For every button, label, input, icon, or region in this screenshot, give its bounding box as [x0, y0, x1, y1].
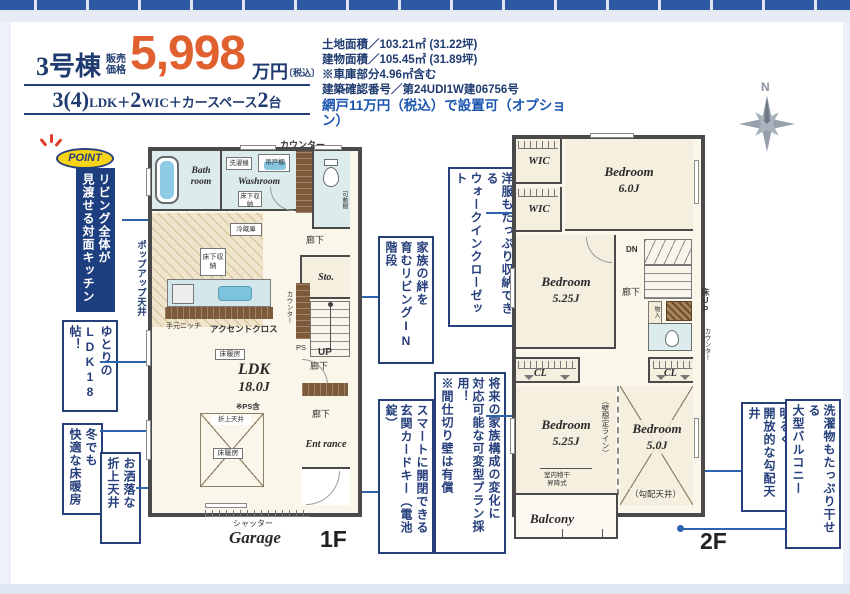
- stairs-up-label: UP: [318, 347, 332, 358]
- bedroom-525b-size: 5.25J: [526, 433, 606, 450]
- annotation-floor-heating: 冬でも快適な床暖房: [62, 423, 103, 515]
- shoe-cabinet: [302, 383, 348, 396]
- hallway-label-1f-a: 廊下: [306, 233, 324, 246]
- closet-2: CL: [648, 357, 693, 383]
- assumed-wall-line: [617, 386, 619, 495]
- window: [590, 133, 634, 138]
- annotation-balcony: 洗濯物もたっぷり干せる大型バルコニー: [785, 399, 841, 549]
- balcony: Balcony: [514, 493, 618, 539]
- annotation-flexible-plan: 将来の家族構成の変化に対応可能な可変型プラン採用！※間仕切り壁は有償: [434, 372, 506, 554]
- top-light-strip: [0, 10, 850, 22]
- confirmation-number: 建築確認番号／第24UDI1W建06756号: [322, 83, 572, 98]
- floor-up-label: 床UP: [700, 288, 711, 322]
- garage-area-note: ※車庫部分4.96㎡含む: [322, 68, 572, 83]
- bathtub-icon: [155, 156, 179, 204]
- land-area: 土地面積／103.21㎡ (31.22坪): [322, 38, 572, 53]
- refrigerator-label: 冷蔵庫: [230, 223, 262, 236]
- window: [205, 503, 247, 508]
- coffered-ceiling-label: 折上天井: [211, 415, 251, 425]
- toilet-room-2f: [648, 323, 692, 351]
- stove-icon: [172, 284, 194, 304]
- floor-label-1f: 1F: [320, 526, 347, 553]
- annotation-ldk18: ゆとりのLDK18帖！: [62, 320, 118, 412]
- left-margin-strip: [0, 22, 11, 584]
- bedroom-6-label: Bedroom 6.0J: [589, 163, 669, 197]
- toilet-icon: [324, 159, 338, 166]
- window: [146, 168, 151, 196]
- underfloor-storage-label: 床下収納: [238, 191, 262, 207]
- underfloor-storage2-label: 床下収納: [200, 248, 226, 276]
- indoor-drying-label: 室内物干昇降式: [544, 472, 570, 487]
- floor-label-2f: 2F: [700, 528, 727, 555]
- hallway-label-2f: 廊下: [622, 285, 640, 298]
- wic2-label: WIC: [520, 203, 558, 215]
- garage-label: Garage: [200, 528, 310, 548]
- entrance-label: Ent rance: [304, 439, 348, 450]
- window: [510, 418, 515, 454]
- wic-room-2: WIC: [516, 187, 562, 232]
- window: [146, 330, 151, 366]
- window: [146, 420, 151, 460]
- stairs-winder-2f: [644, 239, 692, 265]
- storage-label: Sto.: [302, 272, 350, 283]
- hanger-pipe-icon: [518, 189, 558, 197]
- price-label: 販売価格: [106, 54, 126, 76]
- hanger-pipe-icon: [518, 141, 558, 149]
- screen-option-note: 網戸11万円（税込）で設置可（オプション）: [322, 98, 572, 128]
- bath-room: Bath room: [152, 151, 222, 211]
- hanging-cupboard-label: 吊戸棚: [259, 156, 291, 166]
- right-margin-strip: [843, 22, 850, 584]
- window: [510, 268, 515, 308]
- bedroom-525b-label: Bedroom 5.25J: [526, 416, 606, 450]
- bath-room-label: Bath room: [182, 166, 220, 188]
- wic1-label: WIC: [520, 155, 558, 167]
- ldk-size-label: 18.0J: [222, 379, 286, 397]
- ldk-label: LDK 18.0J: [222, 361, 286, 397]
- washing-machine-label: 洗濯機: [226, 157, 252, 170]
- movable-shelf-label: 可動棚: [340, 191, 349, 221]
- price-unit: 万円: [252, 58, 288, 84]
- popup-ceiling-label: ポップアップ天井: [133, 240, 147, 336]
- annotation-card-key: スマートに開閉できる玄関カードキー（電池錠）: [378, 399, 434, 554]
- window: [240, 145, 276, 150]
- toilet-icon: [665, 330, 679, 347]
- window: [314, 145, 342, 150]
- counter-by-stairs: [296, 283, 310, 339]
- ps-label: PS: [296, 343, 306, 352]
- floorplan-2f: WIC WIC Bedroom 6.0J Bedroom 5.25J DN 廊下: [512, 135, 705, 517]
- drying-rail-icon: [540, 468, 592, 469]
- point-badge: POINT: [56, 148, 114, 169]
- sloped-ceiling-label: （勾配天井）: [630, 488, 681, 500]
- accent-cloth-label: アクセントクロス: [210, 323, 278, 335]
- building-area: 建物面積／105.45㎡ (31.89坪): [322, 53, 572, 68]
- top-banner-strip: [0, 0, 850, 10]
- compass-north-label: N: [761, 80, 770, 94]
- washroom-label: Washroom: [228, 177, 290, 187]
- flyer-page: 3号棟 販売価格 5,998 万円 〔税込〕 3(4)LDK＋2WIC＋カースペ…: [0, 0, 850, 594]
- ps-note-label: ※PS含: [236, 401, 260, 412]
- bedroom-525a-size: 5.25J: [526, 290, 606, 307]
- bedroom-5-room: Bedroom 5.0J （勾配天井）: [620, 386, 693, 505]
- door-arc: [270, 187, 294, 211]
- header-rule-top: [24, 84, 310, 86]
- raised-floor-area: [666, 301, 692, 321]
- connector-dot: [677, 525, 684, 532]
- kitchen-counter: [167, 279, 271, 307]
- property-info: 土地面積／103.21㎡ (31.22坪) 建物面積／105.45㎡ (31.8…: [322, 38, 572, 128]
- bedroom-6-room: Bedroom 6.0J: [565, 139, 693, 231]
- layout-rooms: 3(4): [52, 87, 89, 112]
- counter-side-label: カウンター: [283, 291, 293, 337]
- price-tax-note: 〔税込〕: [284, 66, 320, 79]
- closet-1-label: CL: [534, 368, 547, 379]
- wic-room-1: WIC: [516, 139, 562, 184]
- annotation-wic: 洋服もたっぷり収納できるウォークインクローゼット: [448, 167, 519, 327]
- point-rays: [42, 134, 60, 148]
- connector: [683, 528, 785, 530]
- hanger-pipe-icon: [518, 361, 576, 369]
- annotation-kitchen: リビング全体が見渡せる対面キッチン: [76, 168, 115, 312]
- window: [694, 160, 699, 204]
- niche-label: 手元ニッチ: [166, 321, 201, 331]
- building-number: 3号棟: [36, 46, 101, 83]
- assumed-wall-label: （壁想定ライン）: [600, 397, 611, 485]
- washroom: 洗濯機 吊戸棚 Washroom 床下収納: [222, 151, 296, 211]
- bottom-light-strip: [0, 584, 850, 594]
- stairs-2f: [644, 265, 692, 299]
- layout-spec: 3(4)LDK＋2WIC＋カースペース2台: [24, 87, 310, 113]
- bedroom-5-label: Bedroom 5.0J: [624, 420, 690, 454]
- compass-rose-icon: [737, 94, 797, 154]
- entrance-door-arc: [306, 471, 340, 505]
- floor-heating-label-2: 床暖房: [213, 448, 243, 459]
- price-value: 5,998: [130, 30, 245, 78]
- door-arc: [586, 237, 612, 263]
- bedroom-525a-label: Bedroom 5.25J: [526, 273, 606, 307]
- floor-heating-label-1: 床暖房: [215, 349, 245, 360]
- toilet-room-1f: 可動棚: [312, 151, 350, 229]
- hanging-cupboard-icon: 吊戸棚: [258, 154, 290, 172]
- hallway-label-1f-c: 廊下: [312, 407, 330, 420]
- counter-label-2f: カウンター: [701, 328, 711, 376]
- window: [694, 418, 699, 458]
- sink-icon: [218, 286, 252, 301]
- balcony-label: Balcony: [530, 511, 574, 527]
- bedroom-5-size: 5.0J: [624, 437, 690, 454]
- annotation-coffered-ceiling: お洒落な折上天井: [100, 452, 141, 544]
- annotation-living-stairs: 家族の絆を育むリビングIN階段: [378, 236, 434, 364]
- dining-counter: [165, 307, 273, 319]
- entrance-porch: [302, 467, 350, 505]
- stairs-down-label: DN: [626, 245, 638, 254]
- header-rule-bottom: [24, 113, 310, 115]
- floorplan-1f: Bath room 洗濯機 吊戸棚 Washroom 床下収納 可動棚 廊下 S…: [148, 147, 362, 517]
- shutter-ticks: [205, 510, 310, 517]
- coffered-ceiling-area: 折上天井 床暖房: [200, 413, 264, 487]
- counter-cabinet: [296, 151, 312, 213]
- bedroom-6-size: 6.0J: [589, 180, 669, 197]
- closet-1: CL: [516, 357, 580, 383]
- bedroom-525a-room: Bedroom 5.25J: [516, 235, 616, 349]
- compass: N: [735, 80, 799, 166]
